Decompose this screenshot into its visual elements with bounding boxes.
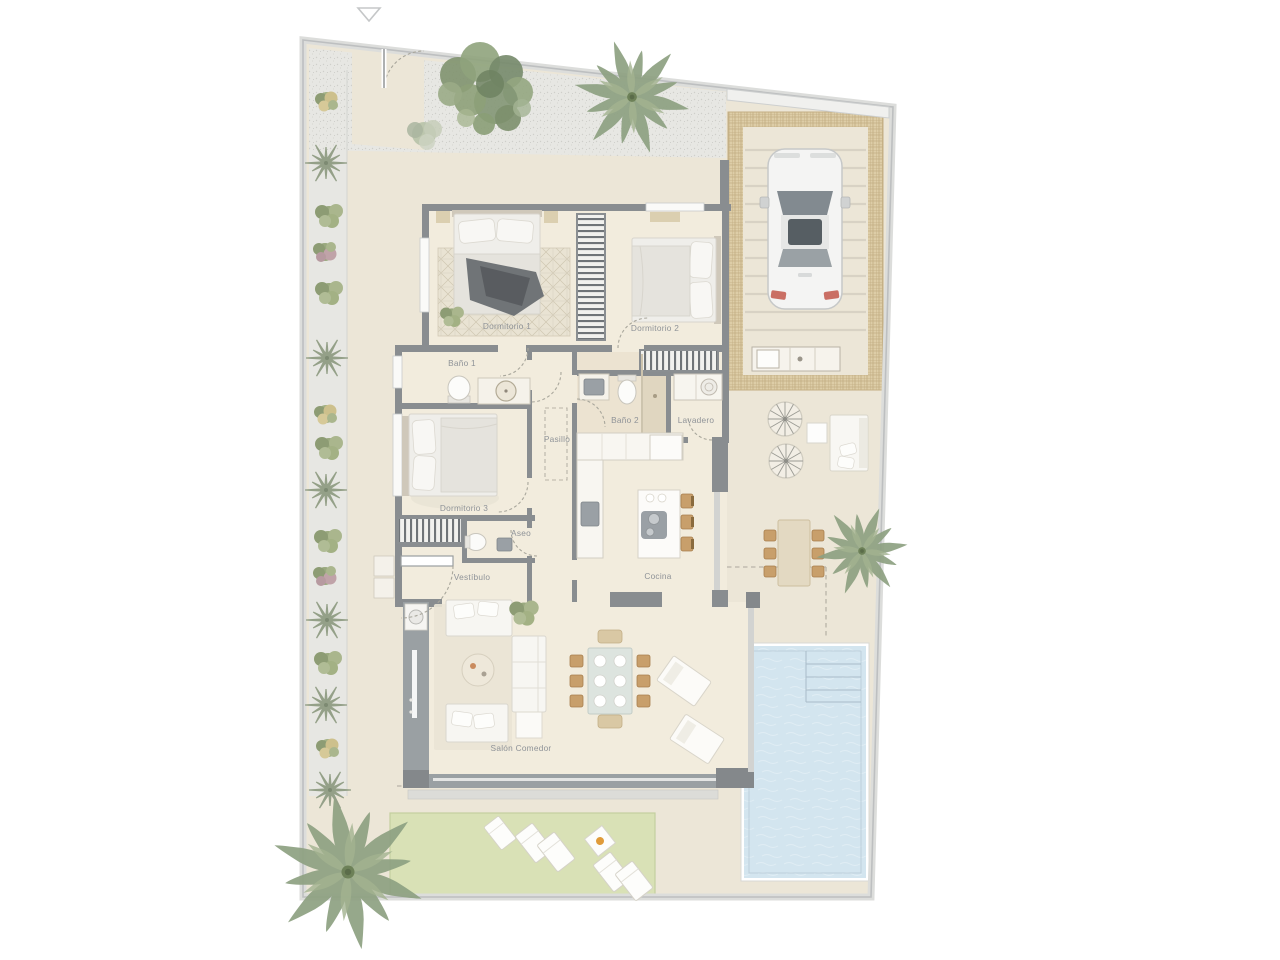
outdoor-dining [764, 520, 824, 586]
faucet [798, 357, 803, 362]
sofa-bottom [446, 704, 508, 742]
room-label-salon-comedor: Salón Comedor [491, 743, 552, 753]
fridge [650, 435, 682, 460]
entry-step [374, 578, 394, 598]
toilet-bano1 [448, 376, 470, 400]
sunroof [788, 219, 822, 245]
floor-plan-canvas: Dormitorio 1 Dormitorio 2 Baño 1 Baño 2 … [0, 0, 1280, 960]
gravel-side-strip [309, 70, 347, 796]
room-label-bano-1: Baño 1 [448, 358, 476, 368]
side-table [516, 712, 542, 738]
head-chair [598, 630, 622, 643]
kitchen-glass-door [714, 492, 720, 590]
carport-counter [752, 347, 840, 371]
room-label-pasillo: Pasillo [544, 434, 570, 444]
basin-aseo [497, 538, 512, 551]
room-bano-1 [448, 376, 530, 404]
toilet-bano2 [618, 380, 636, 404]
room-dormitorio-3 [402, 414, 499, 509]
salon-east-glass-wall [748, 606, 754, 772]
window-dorm2 [646, 203, 704, 211]
room-label-dormitorio-3: Dormitorio 3 [440, 503, 488, 513]
window-dorm1 [420, 238, 429, 312]
room-label-dormitorio-2: Dormitorio 2 [631, 323, 679, 333]
pool-water-texture [744, 646, 866, 878]
room-label-dormitorio-1: Dormitorio 1 [483, 321, 531, 331]
pot [646, 528, 654, 536]
basin-bano2 [584, 379, 604, 395]
parasol [769, 444, 803, 478]
utility-sink [757, 350, 779, 368]
shower-drain [653, 394, 657, 398]
floor-plan-svg: Dormitorio 1 Dormitorio 2 Baño 1 Baño 2 … [0, 0, 1280, 960]
outdoor-sofa [830, 415, 868, 471]
room-label-vestibulo: Vestíbulo [454, 572, 491, 582]
island-stools [681, 494, 694, 551]
room-label-lavadero: Lavadero [678, 415, 715, 425]
bed-dorm1 [452, 210, 544, 316]
headlight-left [774, 153, 800, 158]
salon-sw-post [403, 770, 429, 788]
sofa-right [512, 636, 546, 712]
sofa-top [446, 600, 512, 636]
media-wall-strip [412, 650, 417, 718]
mirror-left [760, 197, 769, 208]
windshield [777, 191, 833, 215]
car [760, 149, 850, 309]
room-label-bano-2: Baño 2 [611, 415, 639, 425]
closet-dorm1 [577, 214, 605, 340]
kitchen-sink [581, 502, 599, 526]
patio-side-table [807, 423, 827, 443]
salon-south-glass-line [433, 778, 716, 781]
window-bath1 [393, 356, 402, 388]
pool [741, 643, 869, 881]
entry-door-leaf [401, 556, 453, 566]
nightstand [544, 211, 558, 223]
window-dorm3 [393, 414, 402, 496]
headlight-right [810, 153, 836, 158]
bed-dorm3 [402, 414, 497, 496]
carport-pergola [720, 112, 883, 390]
entry-step [374, 556, 394, 576]
rear-detail [798, 273, 812, 277]
head-chair [598, 715, 622, 728]
rear-window [778, 249, 832, 267]
room-label-cocina: Cocina [644, 571, 671, 581]
bench-dorm2 [650, 212, 680, 222]
nightstand [436, 211, 450, 223]
salon-ne-post [746, 592, 760, 608]
shower-glass [641, 354, 643, 435]
coffee-table [462, 654, 494, 686]
outdoor-table [778, 520, 810, 586]
closet-dorm2 [640, 350, 718, 371]
bed-dorm2 [632, 236, 721, 324]
room-label-aseo: Aseo [511, 528, 531, 538]
closet-dorm3 [398, 518, 462, 543]
washer-drum [701, 379, 717, 395]
mirror-right [841, 197, 850, 208]
parasol [768, 402, 802, 436]
room-lavadero [674, 374, 722, 400]
south-deck-step [408, 790, 718, 799]
kitchen-island [638, 490, 680, 558]
pot [649, 514, 660, 525]
